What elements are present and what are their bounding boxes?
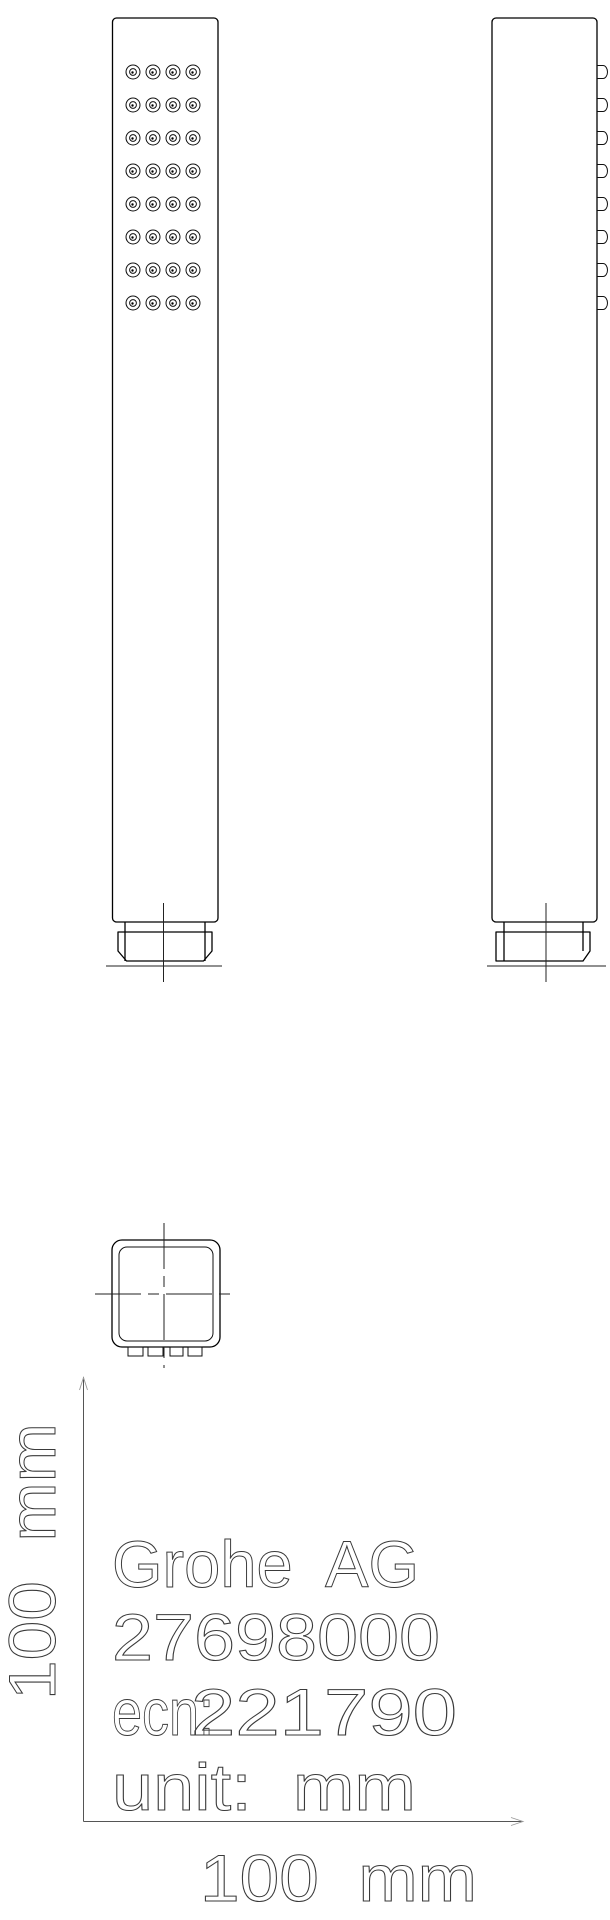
side-nozzle-bump [597, 297, 608, 310]
side-view [487, 18, 608, 982]
nozzle-center-dot [171, 71, 173, 73]
nozzle-center-dot [171, 302, 173, 304]
nozzle-center-dot [171, 104, 173, 106]
side-nozzle-bump [597, 198, 608, 211]
ecn-value-text: 221790 [191, 1675, 457, 1749]
nozzle-center-dot [151, 302, 153, 304]
nozzle-center-dot [191, 236, 193, 238]
nozzle-center-dot [191, 269, 193, 271]
side-fitting-outline [496, 932, 590, 961]
side-nozzle-bump [597, 264, 608, 277]
nozzle-center-dot [191, 71, 193, 73]
brand-text: Grohe AG [112, 1527, 419, 1601]
top-tab [148, 1347, 163, 1356]
side-nozzle-bump [597, 165, 608, 178]
side-nozzle-bump [597, 132, 608, 145]
top-view [95, 1223, 233, 1368]
front-body-outline [113, 18, 219, 922]
front-view [106, 18, 222, 982]
top-tab [128, 1347, 143, 1356]
dim-horizontal-label: 100 mm [200, 1841, 477, 1915]
nozzle-center-dot [131, 137, 133, 139]
nozzle-center-dot [191, 170, 193, 172]
top-tab [170, 1347, 183, 1356]
nozzle-center-dot [131, 104, 133, 106]
nozzle-center-dot [131, 269, 133, 271]
nozzle-center-dot [171, 170, 173, 172]
nozzle-center-dot [171, 269, 173, 271]
nozzle-center-dot [151, 137, 153, 139]
side-nozzle-bump [597, 66, 608, 79]
nozzle-center-dot [151, 170, 153, 172]
nozzle-center-dot [171, 236, 173, 238]
unit-text: unit: mm [112, 1750, 416, 1824]
side-nozzle-bump [597, 231, 608, 244]
nozzle-center-dot [151, 104, 153, 106]
front-connector [106, 903, 222, 982]
technical-drawing: Grohe AG 27698000 ecn: 221790 unit: mm 1… [0, 0, 610, 1920]
front-fitting-outline [118, 932, 212, 961]
side-nozzle-bump [597, 99, 608, 112]
nozzle-center-dot [191, 203, 193, 205]
nozzle-center-dot [151, 203, 153, 205]
nozzle-center-dot [131, 302, 133, 304]
nozzle-center-dot [191, 302, 193, 304]
front-nozzles [126, 65, 200, 310]
side-body-outline [492, 18, 597, 922]
top-nozzle-tabs [128, 1347, 202, 1356]
nozzle-center-dot [151, 236, 153, 238]
nozzle-center-dot [171, 137, 173, 139]
side-connector [487, 903, 606, 982]
top-tab [188, 1347, 202, 1356]
nozzle-center-dot [131, 170, 133, 172]
side-nozzle-profiles [597, 66, 608, 310]
nozzle-center-dot [151, 71, 153, 73]
nozzle-center-dot [131, 236, 133, 238]
dim-vertical-label: 100 mm [0, 1423, 69, 1700]
nozzle-center-dot [191, 137, 193, 139]
nozzle-center-dot [151, 269, 153, 271]
nozzle-center-dot [131, 71, 133, 73]
nozzle-center-dot [171, 203, 173, 205]
nozzle-center-dot [131, 203, 133, 205]
nozzle-center-dot [191, 104, 193, 106]
product-number-text: 27698000 [112, 1600, 440, 1674]
labels: Grohe AG 27698000 ecn: 221790 unit: mm 1… [0, 1423, 477, 1915]
